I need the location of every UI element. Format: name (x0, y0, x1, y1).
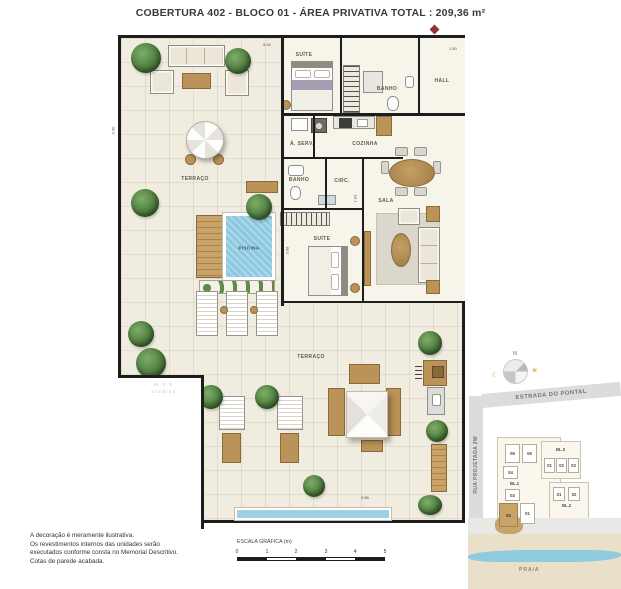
disclaimer-line: Os revestimentos internos das unidades s… (30, 541, 230, 550)
road-estrada-do-pontal: ESTRADA DO PONTAL (481, 382, 621, 408)
dimension-label: 9.40 (110, 127, 115, 135)
refrigerator (376, 116, 392, 136)
scale-tick: 2 (295, 549, 298, 555)
coffee-table (182, 73, 211, 89)
scale-tick: 0 (236, 549, 239, 555)
outdoor-chair (386, 388, 401, 436)
page-title: COBERTURA 402 - BLOCO 01 - ÁREA PRIVATIV… (0, 7, 621, 19)
lounge-chair (196, 291, 218, 336)
dimension-label: 5.88 (361, 495, 369, 500)
grill-utensils (415, 363, 422, 379)
scale-tick: 1 (266, 549, 269, 555)
closet (343, 65, 360, 113)
room-label-terraco-lower: TERRAÇO (297, 354, 325, 360)
potted-plant (426, 420, 448, 442)
outdoor-sofa (168, 45, 225, 67)
bed (291, 61, 333, 111)
room-label-suite-2: SUÍTE (314, 236, 331, 242)
bed (308, 246, 348, 296)
square-umbrella (346, 391, 388, 438)
room-label-suite-1: SUÍTE (296, 52, 313, 58)
unit-cell-03: 03 (505, 489, 520, 501)
scale-bar-label: ESCALA GRÁFICA (m) (237, 539, 292, 545)
road-rua-projetada: RUA PROJETADA 2W (469, 396, 483, 533)
unit-cell-04: 04 (503, 466, 518, 479)
disclaimer-line: A decoração é meramente ilustrativa. (30, 532, 230, 541)
dimension-label: 1.50 (449, 46, 457, 51)
unit-cell-bl2-01: 01 (553, 487, 565, 501)
room-label-aserv: Á. SERV. (290, 141, 314, 147)
wall (325, 159, 327, 209)
block3-label: BL.3 (556, 447, 565, 452)
room-label-sala: SALA (378, 198, 393, 204)
outdoor-chair (349, 364, 380, 384)
floor-plan-sheet: COBERTURA 402 - BLOCO 01 - ÁREA PRIVATIV… (0, 0, 621, 589)
dining-chair (414, 187, 427, 196)
potted-plant (303, 475, 325, 497)
wood-bench (431, 444, 447, 492)
wall (281, 113, 465, 116)
block1-label: BL.1 (510, 481, 519, 486)
toilet (290, 186, 301, 200)
dimension-label: 5.45 (263, 42, 271, 47)
studio-watermark: m.h.b studios (132, 382, 196, 396)
potted-plant (255, 385, 279, 409)
wall (281, 208, 364, 210)
lounge-chair (226, 291, 248, 336)
outdoor-armchair (150, 70, 174, 94)
sun-icon: ☀ (531, 366, 538, 375)
wall (281, 38, 284, 306)
watermark-line1: m.h.b (132, 382, 196, 389)
wall (281, 301, 465, 303)
grill-counter (423, 360, 447, 386)
unit-cell-01: 01 (520, 503, 535, 524)
umbrella (186, 121, 224, 159)
scale-bar-rule (237, 557, 385, 561)
potted-plant (136, 348, 166, 378)
sofa (418, 227, 440, 283)
room-label-circ: CIRC. (334, 178, 350, 184)
side-table (350, 283, 360, 293)
site-map: N ☀ ☾ ESTRADA DO PONTAL RUA PROJETADA 2W… (468, 350, 621, 589)
unit-cell-bl2-02: 02 (568, 487, 580, 501)
outdoor-sink (427, 387, 445, 415)
room-label-banho-1: BANHO (377, 86, 397, 92)
unit-cell-bl3-01: 01 (544, 458, 555, 473)
side-table (426, 280, 440, 294)
entry-marker-icon (430, 25, 440, 35)
side-table (250, 306, 258, 314)
potted-plant (418, 495, 442, 515)
ocean-wave (468, 550, 621, 562)
room-label-terraco-upper: TERRAÇO (181, 176, 209, 182)
scale-tick: 3 (325, 549, 328, 555)
dining-chair (395, 147, 408, 156)
floor-plan: TERRAÇO SUÍTE BANHO HALL Á. SERV. COZINH… (118, 35, 465, 523)
scale-tick: 5 (384, 549, 387, 555)
toilet (387, 96, 399, 111)
lounge-chair (256, 291, 278, 336)
kitchen-counter (333, 116, 375, 129)
cabinet (318, 195, 336, 205)
scale-bar: ESCALA GRÁFICA (m) 0 1 2 3 4 5 (237, 539, 397, 563)
side-table (350, 236, 360, 246)
coffee-table (280, 433, 299, 463)
bathroom-sink (288, 165, 304, 176)
tv-console (364, 231, 371, 286)
unit-cell-05: 05 (505, 444, 520, 463)
room-label-hall: HALL (435, 78, 450, 84)
side-table (220, 306, 228, 314)
room-label-banho-2: BANHO (289, 177, 309, 183)
scale-tick: 4 (354, 549, 357, 555)
room-label-piscina: PISCINA (238, 246, 259, 251)
potted-plant (128, 321, 154, 347)
unit-cell-02: 02 (499, 503, 518, 527)
closet (280, 212, 330, 226)
disclaimer-line: executados conforme consta no Memorial D… (30, 549, 230, 558)
dining-chair (395, 187, 408, 196)
wall (418, 38, 420, 115)
outdoor-chair (361, 440, 383, 452)
potted-plant (131, 43, 161, 73)
wall (313, 115, 315, 158)
bench (246, 181, 278, 193)
coffee-table (222, 433, 241, 463)
outdoor-sofa (277, 396, 303, 430)
shore-band (468, 518, 621, 534)
side-table (426, 206, 440, 222)
potted-plant (225, 48, 251, 74)
road-estrada-label: ESTRADA DO PONTAL (515, 389, 587, 401)
unit-cell-bl3-03: 03 (568, 458, 579, 473)
watermark-line2: studios (132, 389, 196, 396)
outdoor-sofa (219, 396, 245, 430)
wall (281, 157, 403, 159)
wall (362, 157, 364, 303)
armchair (398, 208, 420, 225)
unit-cell-bl3-02: 02 (556, 458, 567, 473)
disclaimer-line: Cotas de parede acabada. (30, 558, 230, 567)
water-feature (235, 508, 391, 520)
block2-label: BL.2 (562, 503, 571, 508)
dimension-label: 1.63 (352, 195, 357, 203)
dining-table (389, 159, 435, 187)
compass-icon (503, 359, 528, 384)
compass-north-label: N (513, 351, 517, 357)
moon-icon: ☾ (492, 371, 498, 379)
dining-chair (414, 147, 427, 156)
unit-cell-06: 06 (522, 444, 537, 463)
laundry-sink (291, 118, 308, 131)
potted-plant (246, 194, 272, 220)
dining-chair (381, 161, 389, 174)
bathroom-sink (405, 76, 414, 88)
dimension-label: 3.08 (284, 247, 289, 255)
outdoor-chair (328, 388, 345, 436)
plan-notch: m.h.b studios (118, 375, 204, 529)
room-label-cozinha: COZINHA (352, 141, 378, 147)
disclaimer: A decoração é meramente ilustrativa. Os … (30, 532, 230, 566)
potted-plant (418, 331, 442, 355)
road-rua-label: RUA PROJETADA 2W (473, 436, 479, 494)
beach-label: PRAIA (519, 567, 540, 573)
coffee-table (391, 233, 411, 267)
wall (340, 38, 342, 115)
wood-deck (196, 215, 225, 278)
potted-plant (131, 189, 159, 217)
